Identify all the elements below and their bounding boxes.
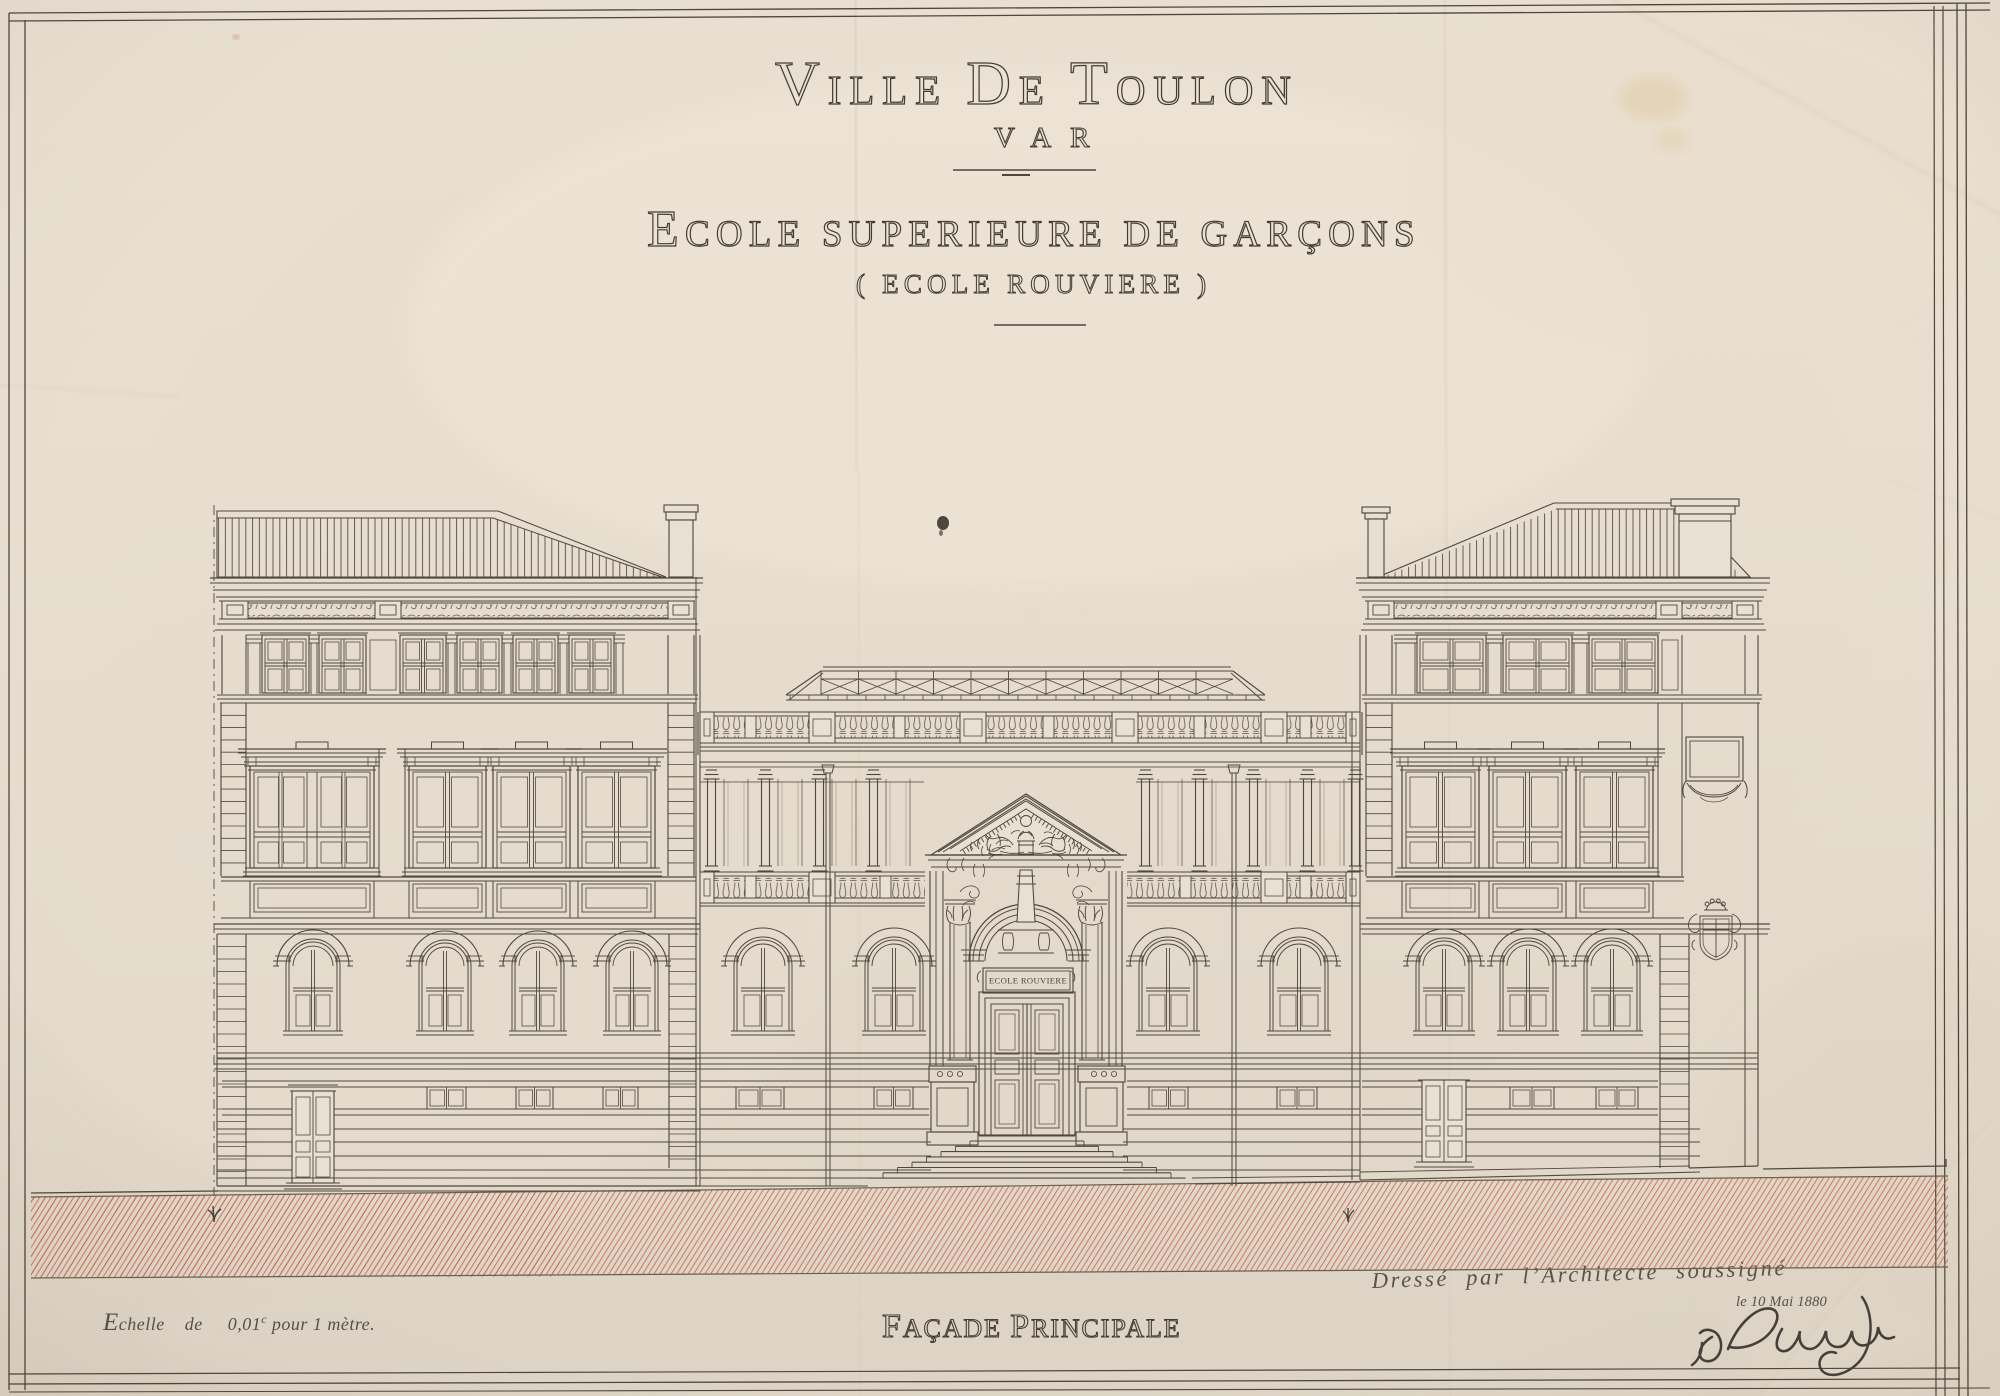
svg-text:le 10 Mai 1880: le 10 Mai 1880 (1736, 1294, 1828, 1310)
svg-text:FAÇADE PRINCIPALE: FAÇADE PRINCIPALE (882, 1308, 1182, 1345)
svg-text:VAR: VAR (994, 122, 1109, 154)
svg-text:( ECOLE ROUVIERE ): ( ECOLE ROUVIERE ) (856, 269, 1211, 299)
svg-text:ECOLE ROUVIERE: ECOLE ROUVIERE (989, 976, 1067, 986)
svg-text:Echelle de 0,01c pour 1: Echelle de 0,01c pour 1 mètre. (102, 1309, 375, 1336)
